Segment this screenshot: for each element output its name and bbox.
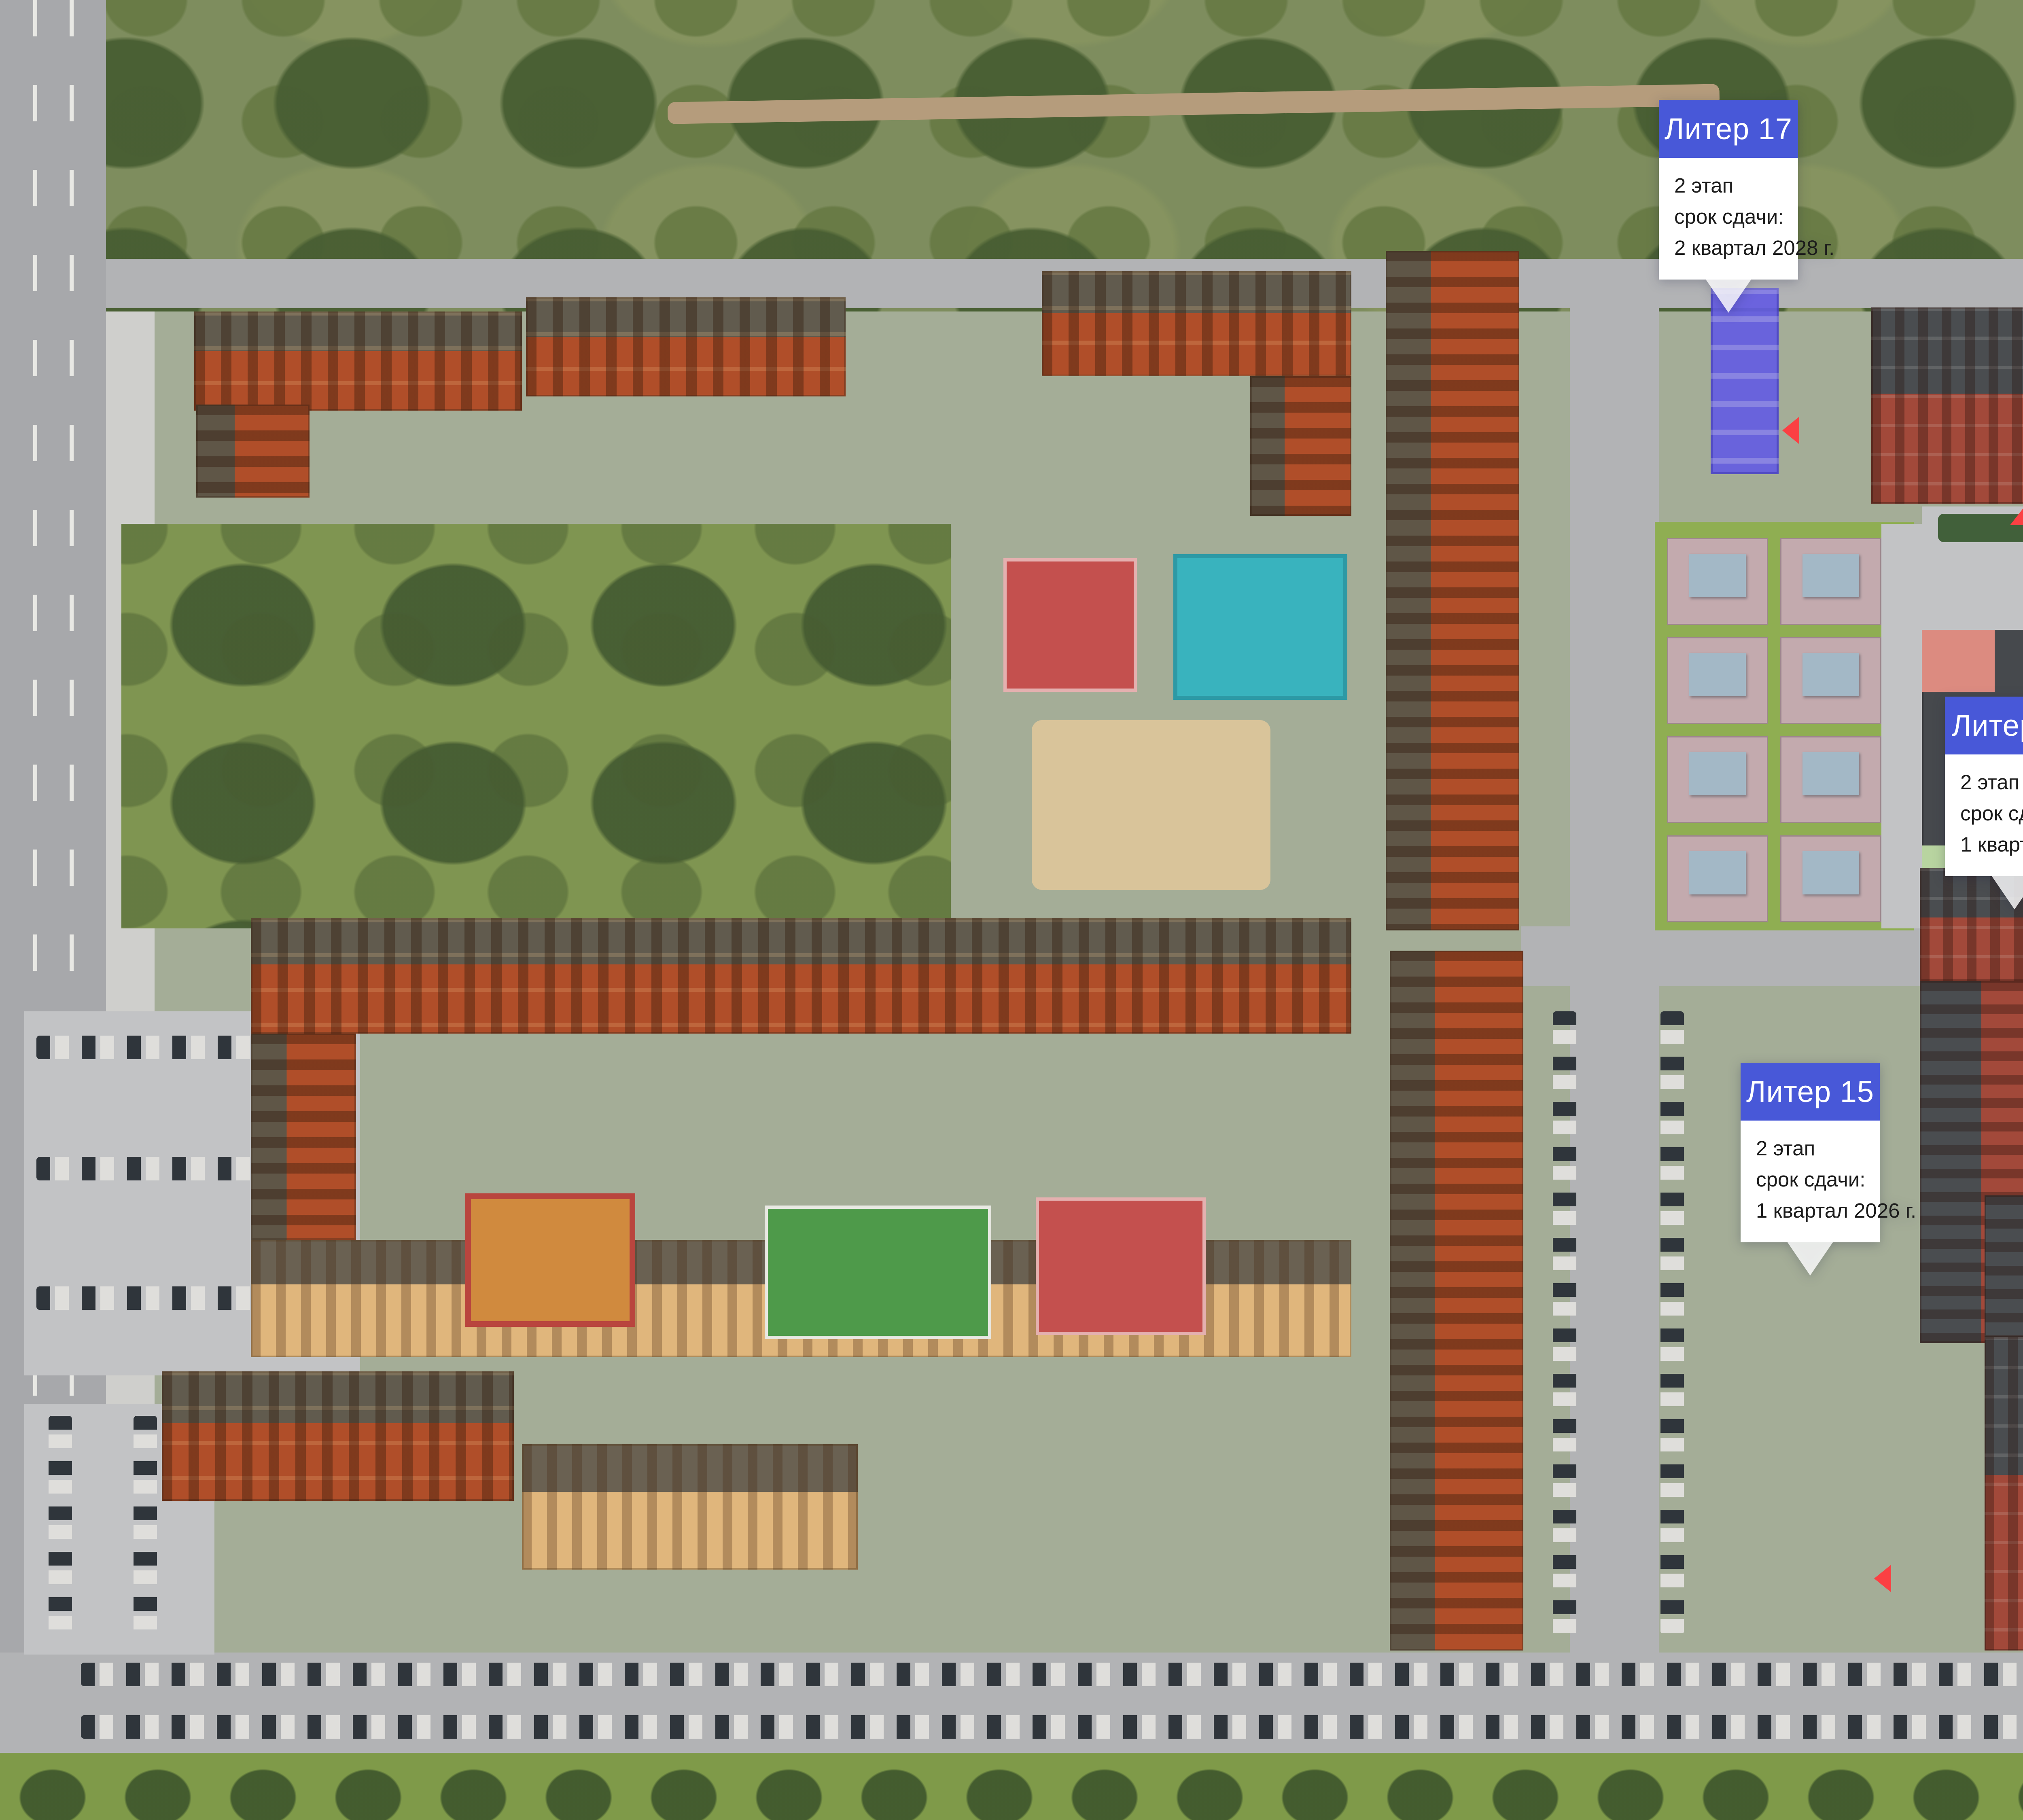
building-block (522, 1444, 858, 1570)
masterplan-canvas: Литер 172 этапсрок сдачи:2 квартал 2028 … (0, 0, 2023, 1820)
building-label-liter-11[interactable]: Литер 112 этапсрок сдачи:1 квартал 2026 … (1945, 697, 2023, 876)
building-block (162, 1371, 514, 1501)
label-pointer-tail (1992, 876, 2023, 909)
building-block (251, 1034, 356, 1240)
kindergarten-pavilion (1667, 637, 1768, 724)
building-block (196, 405, 310, 498)
kindergarten-pavilion (1780, 835, 1881, 922)
playground-sand (1032, 720, 1270, 890)
building-block (526, 297, 846, 396)
label-details: 2 этапсрок сдачи:2 квартал 2028 г. (1659, 158, 1798, 280)
building-block (1042, 271, 1351, 376)
building-block (1250, 376, 1351, 516)
selected-building-liter-17[interactable] (1711, 288, 1779, 474)
sports-court (1036, 1197, 1206, 1335)
label-details: 2 этапсрок сдачи:1 квартал 2026 г. (1945, 754, 2023, 876)
parked-cars-bottom-row (81, 1663, 2023, 1686)
building-block (1871, 307, 2023, 504)
label-detail-line: срок сдачи: (1960, 798, 2023, 829)
red-triangle-marker-up (2010, 506, 2023, 525)
label-detail-line: 2 этап (1960, 767, 2023, 798)
building-label-liter-17[interactable]: Литер 172 этапсрок сдачи:2 квартал 2028 … (1659, 100, 1798, 280)
label-detail-line: 2 квартал 2028 г. (1674, 232, 1788, 263)
kindergarten-pavilion (1667, 736, 1768, 823)
basketball-court (465, 1193, 635, 1327)
label-detail-line: 1 квартал 2026 г. (1960, 829, 2023, 860)
building-block (194, 311, 522, 411)
kindergarten-pavilion (1780, 538, 1881, 625)
label-detail-line: 2 этап (1756, 1133, 1870, 1164)
label-detail-line: 2 этап (1674, 170, 1788, 201)
label-pointer-tail (1706, 280, 1751, 313)
label-detail-line: срок сдачи: (1674, 201, 1788, 232)
label-detail-line: 1 квартал 2026 г. (1756, 1195, 1870, 1226)
building-label-liter-15[interactable]: Литер 152 этапсрок сдачи:1 квартал 2026 … (1741, 1063, 1880, 1242)
parked-cars-bottom-row (81, 1715, 2023, 1739)
label-pointer-tail (1788, 1242, 1833, 1275)
label-title: Литер 17 (1659, 100, 1798, 158)
kindergarten-pavilion (1780, 637, 1881, 724)
park (121, 524, 951, 928)
label-title: Литер 11 (1945, 697, 2023, 754)
kindergarten-pavilion (1667, 835, 1768, 922)
label-detail-line: срок сдачи: (1756, 1164, 1870, 1195)
label-details: 2 этапсрок сдачи:1 квартал 2026 г. (1741, 1121, 1880, 1242)
building-block (1985, 1337, 2023, 1651)
sports-field (765, 1206, 991, 1339)
building-chain-north (1386, 251, 1519, 930)
parked-cars (134, 1416, 157, 1642)
label-title: Литер 15 (1741, 1063, 1880, 1121)
red-triangle-marker-left (1782, 417, 1799, 444)
parked-cars (1660, 1011, 1684, 1634)
kindergarten-pavilion (1667, 538, 1768, 625)
building-block (251, 918, 1351, 1034)
parked-cars (49, 1416, 72, 1642)
kindergarten-pavilion (1780, 736, 1881, 823)
building-block (1985, 1195, 2023, 1337)
building-chain-south (1390, 951, 1523, 1651)
green-strip-bottom (0, 1753, 2023, 1820)
red-triangle-marker-left (1874, 1565, 1891, 1592)
road-vertical-center (1570, 279, 1659, 1719)
parked-cars (1553, 1011, 1576, 1634)
playground-teal (1173, 554, 1347, 700)
playground-red (1003, 558, 1137, 692)
